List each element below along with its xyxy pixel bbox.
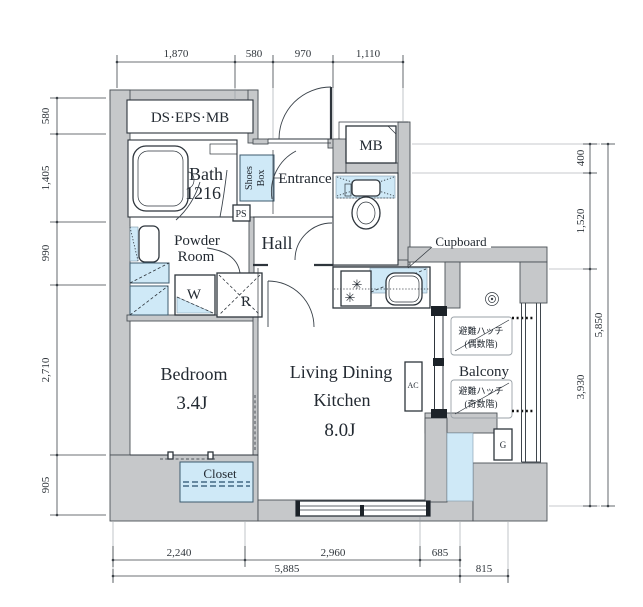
dim-top-2: 580 bbox=[246, 48, 263, 60]
dim-bottom-3: 685 bbox=[432, 547, 449, 559]
ldk-size-label: 8.0J bbox=[324, 420, 355, 441]
window-frame-end bbox=[431, 306, 447, 316]
ds-eps-mb-label: DS·EPS·MB bbox=[151, 110, 229, 126]
wall-post bbox=[208, 452, 213, 459]
shoes-box-label-2: Box bbox=[256, 170, 267, 187]
closet-label: Closet bbox=[203, 466, 237, 481]
gas-meter-label: G bbox=[500, 440, 507, 450]
window-frame-end bbox=[426, 501, 430, 516]
floor-plan-svg: DS·EPS·MB Bath 1216 Shoes Box PS Entranc… bbox=[0, 0, 643, 607]
evac-hatch-odd-label-1: 避難ハッチ bbox=[458, 385, 503, 396]
hall-ldk-door-arc bbox=[268, 281, 314, 327]
dim-top-3: 970 bbox=[295, 48, 312, 60]
dim-bottom-4: 815 bbox=[476, 563, 493, 575]
dim-bottom-2: 2,960 bbox=[321, 547, 346, 559]
shoes-box-label-1: Shoes bbox=[244, 166, 255, 190]
bath-label: Bath bbox=[189, 164, 223, 184]
dim-right-1: 400 bbox=[575, 149, 587, 166]
evac-hatch-even-label-1: 避難ハッチ bbox=[458, 325, 503, 336]
dim-bottom-1: 2,240 bbox=[167, 547, 192, 559]
wall-segment bbox=[445, 262, 460, 308]
balcony-label: Balcony bbox=[459, 364, 509, 380]
balcony-window bbox=[431, 306, 447, 418]
dimensions-bottom: 2,240 2,960 685 5,885 815 bbox=[112, 517, 510, 583]
washer-label: W bbox=[187, 287, 202, 303]
bathtub bbox=[133, 146, 188, 211]
dimensions-left: 580 1,405 990 2,710 905 bbox=[40, 97, 106, 517]
window-frame-end bbox=[296, 501, 300, 516]
dim-top-4: 1,110 bbox=[356, 48, 381, 60]
fridge-space: R bbox=[217, 273, 262, 317]
ac-label: AC bbox=[407, 381, 418, 390]
cupboard-label: Cupboard bbox=[435, 234, 487, 249]
wall-segment bbox=[425, 418, 447, 502]
floorplan-page: DS·EPS·MB Bath 1216 Shoes Box PS Entranc… bbox=[0, 0, 643, 607]
ldk-label-1: Living Dining bbox=[290, 362, 393, 382]
wall-segment bbox=[253, 317, 258, 455]
powder-room-label-2: Room bbox=[178, 249, 215, 265]
kitchen: ✳ ✳ bbox=[333, 267, 430, 308]
hall-label: Hall bbox=[262, 233, 293, 253]
window-frame-mid bbox=[360, 505, 364, 516]
closet: Closet bbox=[180, 462, 253, 502]
dim-right-total: 5,850 bbox=[593, 312, 605, 337]
stove-burner-icon: ✳ bbox=[345, 290, 356, 305]
dim-left-2: 1,405 bbox=[40, 165, 52, 190]
bath-size-label: 1216 bbox=[185, 183, 221, 203]
washer-space: W bbox=[175, 275, 215, 315]
powder-room-label-1: Powder bbox=[174, 233, 220, 249]
dim-left-4: 2,710 bbox=[40, 357, 52, 382]
evac-hatch-even-label-2: (偶数階) bbox=[465, 338, 498, 349]
window-frame-end bbox=[431, 409, 447, 418]
wall-segment bbox=[520, 262, 547, 303]
ldk-label-2: Kitchen bbox=[314, 390, 371, 410]
mb-label: MB bbox=[359, 138, 382, 154]
wall-segment bbox=[408, 247, 547, 262]
wall-segment bbox=[346, 163, 399, 173]
dim-right-3: 3,930 bbox=[575, 374, 587, 399]
bath-room: Bath 1216 bbox=[128, 140, 237, 220]
faucet-icon bbox=[491, 298, 493, 300]
fridge-label: R bbox=[241, 294, 251, 310]
wall-post bbox=[168, 452, 173, 459]
evac-hatch-odd-label-2: (奇数階) bbox=[465, 398, 498, 409]
dim-left-3: 990 bbox=[40, 244, 52, 261]
living-dining-kitchen: Living Dining Kitchen 8.0J AC bbox=[290, 362, 422, 441]
window-frame-mid bbox=[433, 358, 444, 366]
dim-left-5: 905 bbox=[40, 476, 52, 493]
dim-right-2: 1,520 bbox=[575, 208, 587, 233]
toilet-tank bbox=[352, 180, 380, 196]
powder-cabinet bbox=[130, 227, 138, 261]
ldk-window bbox=[296, 501, 430, 516]
washbasin bbox=[139, 226, 159, 262]
wall-segment bbox=[398, 122, 410, 265]
dim-top-1: 1,870 bbox=[164, 48, 189, 60]
wall-segment bbox=[253, 139, 268, 144]
wc-door-arc bbox=[295, 223, 332, 260]
wall-segment bbox=[333, 139, 346, 173]
entrance-label: Entrance bbox=[278, 171, 332, 187]
bedroom-label: Bedroom bbox=[161, 364, 228, 384]
dim-left-1: 580 bbox=[40, 107, 52, 124]
wall-segment bbox=[110, 90, 258, 100]
side-window-strip bbox=[447, 433, 473, 501]
entrance-door-arc bbox=[279, 87, 331, 139]
bedroom-size-label: 3.4J bbox=[176, 393, 207, 414]
pipe-space-label: PS bbox=[235, 209, 246, 220]
dim-bottom-total: 5,885 bbox=[275, 563, 300, 575]
wall-segment bbox=[110, 90, 130, 455]
wall-segment bbox=[473, 463, 547, 521]
bedroom: Bedroom 3.4J bbox=[130, 364, 258, 459]
